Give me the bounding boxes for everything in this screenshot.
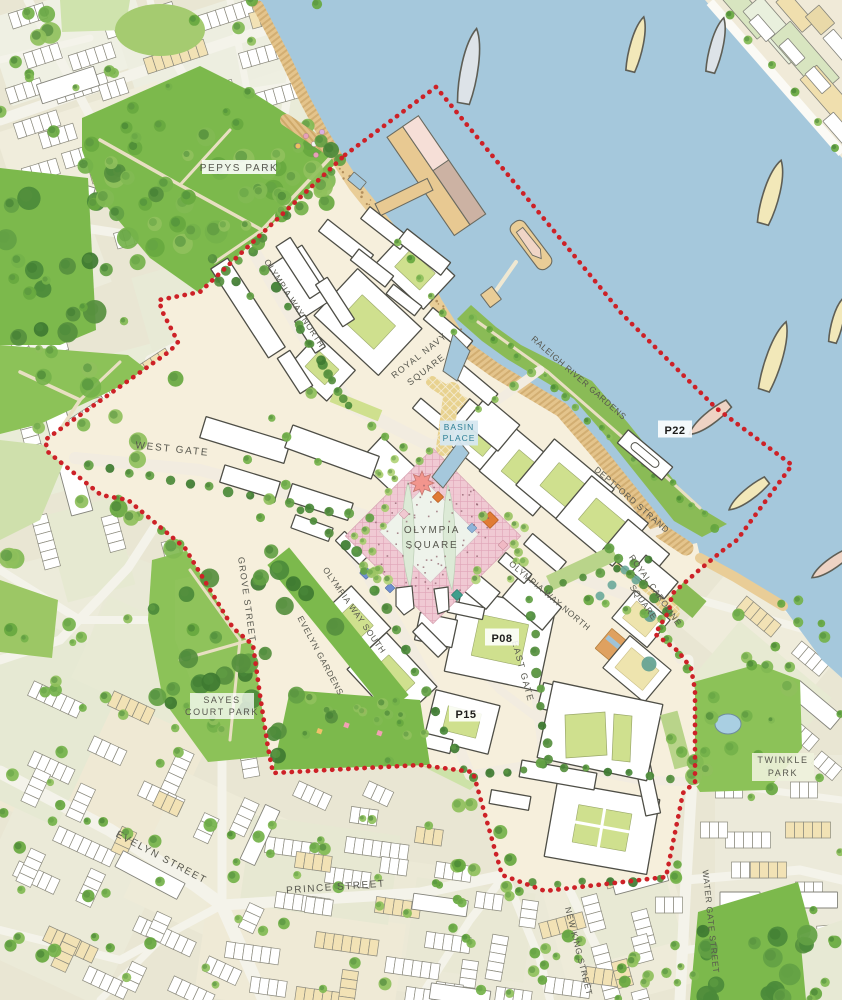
svg-text:TWINKLE: TWINKLE: [757, 755, 808, 765]
svg-text:PEPYS PARK: PEPYS PARK: [200, 163, 279, 174]
svg-text:COURT PARK: COURT PARK: [185, 707, 259, 717]
svg-text:SQUARE: SQUARE: [405, 540, 458, 551]
svg-text:PARK: PARK: [768, 768, 798, 778]
svg-text:P15: P15: [455, 709, 476, 721]
svg-text:OLYMPIA: OLYMPIA: [404, 525, 460, 536]
svg-text:P08: P08: [491, 633, 512, 645]
svg-text:P22: P22: [664, 425, 685, 437]
svg-text:BASIN: BASIN: [444, 422, 475, 432]
svg-text:SAYES: SAYES: [203, 695, 240, 705]
svg-text:PLACE: PLACE: [443, 433, 476, 443]
